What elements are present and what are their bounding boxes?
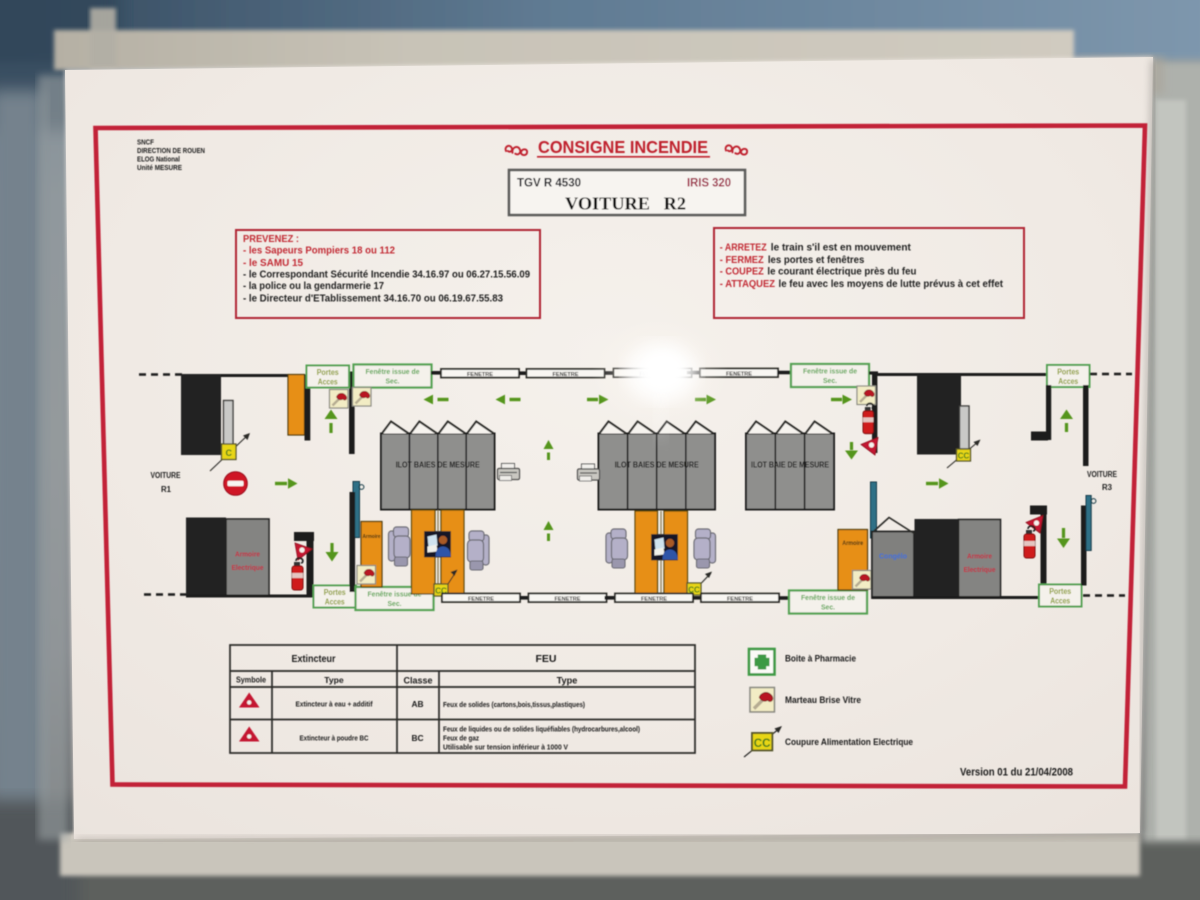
svg-text:Armoire: Armoire: [967, 552, 992, 561]
svg-text:R1: R1: [161, 485, 172, 494]
svg-text:Version 01 du 21/04/2008: Version 01 du 21/04/2008: [960, 767, 1073, 779]
svg-text:Extincteur: Extincteur: [292, 653, 336, 665]
svg-text:ILOT BAIES DE MESURE: ILOT BAIES DE MESURE: [615, 460, 699, 470]
svg-text:Feux de solides (cartons,bois,: Feux de solides (cartons,bois,tissus,pla…: [443, 700, 586, 709]
svg-text:Marteau Brise Vitre: Marteau Brise Vitre: [785, 695, 861, 706]
svg-text:Coupure Alimentation Electriqu: Coupure Alimentation Electrique: [785, 737, 913, 748]
svg-text:PREVENEZ :: PREVENEZ :: [243, 234, 299, 245]
svg-text:VOITURE: VOITURE: [151, 471, 181, 480]
svg-text:ILOT BAIE DE MESURE: ILOT BAIE DE MESURE: [751, 460, 829, 470]
svg-text:C: C: [225, 448, 232, 458]
svg-text:ILOT BAIES DE MESURE: ILOT BAIES DE MESURE: [396, 460, 480, 470]
svg-text:VOITURE R2: VOITURE R2: [565, 194, 686, 214]
svg-text:- la police ou la gendarmerie: - la police ou la gendarmerie 17: [243, 281, 384, 292]
svg-text:le feu avec les moyens de lutt: le feu avec les moyens de lutte prévus à…: [779, 279, 1004, 290]
svg-text:- les Sapeurs Pompiers 18 ou 1: - les Sapeurs Pompiers 18 ou 112: [243, 246, 395, 257]
svg-text:Boite à Pharmacie: Boite à Pharmacie: [785, 654, 856, 665]
svg-text:- le Correspondant Sécurité In: - le Correspondant Sécurité Incendie 34.…: [243, 270, 530, 281]
svg-text:le train s'il est en mouvement: le train s'il est en mouvement: [771, 243, 912, 254]
svg-text:BC: BC: [411, 733, 423, 743]
svg-text:- le SAMU 15: - le SAMU 15: [243, 258, 303, 269]
svg-text:Extincteur à poudre BC: Extincteur à poudre BC: [300, 734, 369, 743]
svg-text:FEU: FEU: [536, 653, 557, 665]
svg-text:Congélo: Congélo: [879, 552, 907, 561]
svg-text:Armoire: Armoire: [363, 534, 381, 540]
svg-text:R3: R3: [1102, 483, 1113, 492]
svg-text:Armoire: Armoire: [235, 550, 260, 559]
svg-text:- FERMEZ: - FERMEZ: [720, 255, 764, 266]
svg-text:Electrique: Electrique: [964, 565, 996, 574]
svg-text:les portes et fenêtres: les portes et fenêtres: [768, 255, 865, 266]
svg-text:Feux de liquides ou de solides: Feux de liquides ou de solides liquéfiab…: [443, 725, 641, 734]
svg-text:Symbole: Symbole: [236, 676, 266, 685]
svg-text:TGV R 4530: TGV R 4530: [517, 178, 581, 190]
svg-text:- COUPEZ: - COUPEZ: [720, 267, 764, 278]
svg-text:- ARRETEZ: - ARRETEZ: [720, 243, 767, 254]
svg-text:VOITURE: VOITURE: [1087, 470, 1117, 479]
svg-text:Utilisable sur tension inférie: Utilisable sur tension inférieur à 1000 …: [443, 743, 568, 752]
svg-text:Electrique: Electrique: [232, 563, 264, 572]
svg-text:le courant électrique près du: le courant électrique près du feu: [767, 267, 916, 278]
svg-text:Extincteur à eau + additif: Extincteur à eau + additif: [296, 700, 373, 709]
svg-text:Unité MESURE: Unité MESURE: [137, 163, 182, 172]
svg-text:IRIS 320: IRIS 320: [687, 178, 731, 190]
svg-text:- ATTAQUEZ: - ATTAQUEZ: [720, 279, 775, 290]
svg-text:Classe: Classe: [404, 676, 433, 687]
svg-text:Feux de gaz: Feux de gaz: [443, 734, 479, 743]
svg-text:- le Directeur d'ETablissement: - le Directeur d'ETablissement 34.16.70 …: [243, 293, 503, 304]
svg-text:Type: Type: [557, 676, 578, 686]
svg-text:Armoire: Armoire: [842, 540, 863, 547]
svg-text:CONSIGNE INCENDIE: CONSIGNE INCENDIE: [538, 137, 708, 157]
svg-text:AB: AB: [411, 699, 423, 709]
svg-text:Type: Type: [324, 675, 344, 685]
